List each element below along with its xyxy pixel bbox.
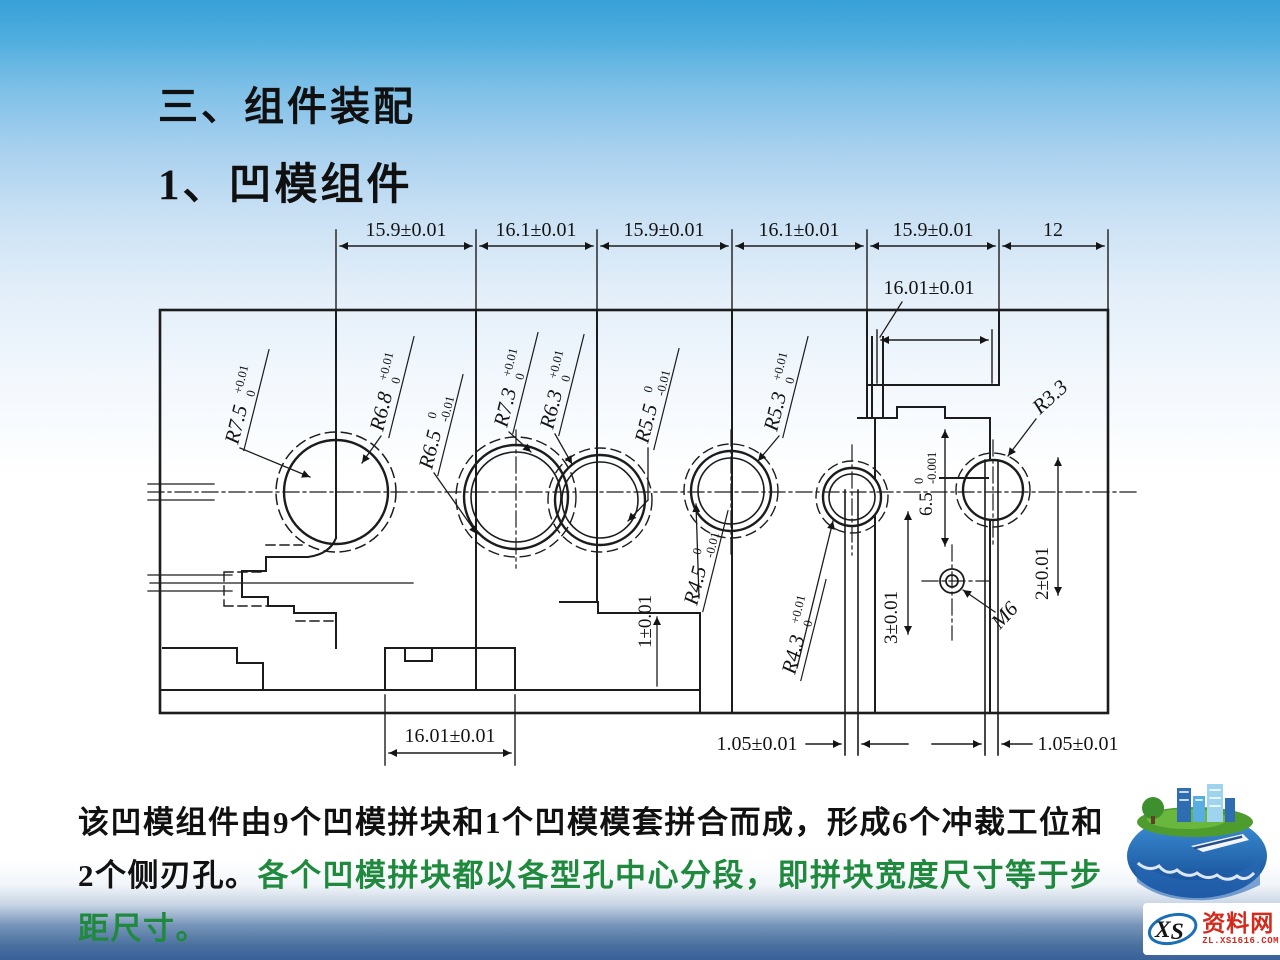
body-paragraph: 该凹模组件由9个凹模拼块和1个凹模模套拼合而成，形成6个冲裁工位和 2个侧刃孔。… [78,796,1193,955]
dim-12: 12 [1043,219,1063,241]
dim-1-05-left: 1.05±0.01 [717,733,908,755]
svg-text:16.01±0.01: 16.01±0.01 [884,277,975,299]
body-line-2: 2个侧刃孔。各个凹模拼块都以各型孔中心分段，即拼块宽度尺寸等于步 [78,849,1193,902]
svg-text:1±0.01: 1±0.01 [635,595,656,648]
svg-text:16.01±0.01: 16.01±0.01 [405,725,496,747]
svg-text:M6: M6 [985,596,1023,634]
svg-text:0: 0 [912,478,926,484]
svg-text:0: 0 [388,376,403,385]
svg-text:R4.5: R4.5 [678,563,711,608]
svg-text:X: X [1154,917,1172,943]
svg-text:2±0.01: 2±0.01 [1032,547,1053,600]
body-line-1: 该凹模组件由9个凹模拼块和1个凹模模套拼合而成，形成6个冲裁工位和 [78,796,1193,849]
svg-text:3±0.01: 3±0.01 [881,591,902,644]
svg-text:R7.3: R7.3 [488,385,521,430]
svg-text:-0.001: -0.001 [925,452,939,484]
dim-15-9-a: 15.9±0.01 [366,219,447,241]
dim-15-9-c: 15.9±0.01 [893,219,974,241]
svg-text:S: S [1171,919,1184,945]
svg-text:6.5: 6.5 [916,492,937,516]
xs-logo-icon: X S [1147,909,1198,949]
svg-text:R6.8: R6.8 [364,389,397,434]
svg-text:R7.5: R7.5 [219,402,252,447]
body-line-3: 距尺寸。 [78,902,1193,955]
svg-text:-0.01: -0.01 [437,395,457,424]
dim-16-01-bottom: 16.01±0.01 [385,695,515,765]
svg-text:0: 0 [558,374,573,383]
svg-text:R6.3: R6.3 [534,387,567,432]
svg-text:R3.3: R3.3 [1027,375,1073,420]
svg-text:R4.3: R4.3 [776,632,809,677]
watermark-card: X S 资料网 ZL.XS1616.COM [1143,903,1280,955]
svg-text:R5.5: R5.5 [629,401,662,446]
watermark-name: 资料网 [1202,912,1279,936]
watermark-text: 资料网 ZL.XS1616.COM [1202,912,1279,946]
watermark-url: ZL.XS1616.COM [1202,936,1279,946]
slide: { "slide": { "title_line1": "三、组件装配", "t… [0,0,1280,960]
dim-1-05-right: 1.05±0.01 [932,733,1118,755]
svg-text:0: 0 [782,376,797,385]
svg-text:0: 0 [243,389,258,398]
svg-text:1.05±0.01: 1.05±0.01 [1038,733,1119,755]
svg-text:0: 0 [800,619,815,628]
dim-16-1-a: 16.1±0.01 [496,219,577,241]
svg-text:R5.3: R5.3 [758,389,791,434]
svg-text:R6.5: R6.5 [413,427,446,472]
svg-text:1.05±0.01: 1.05±0.01 [717,733,798,755]
vertical-dimensions: 1±0.01 3±0.01 6.50-0.001 2±0.01 M6 [635,430,1058,648]
svg-text:0: 0 [512,372,527,381]
svg-text:-0.01: -0.01 [702,531,722,560]
svg-text:-0.01: -0.01 [653,369,673,398]
dim-15-9-b: 15.9±0.01 [624,219,705,241]
dim-16-1-b: 16.1±0.01 [759,219,840,241]
top-dimension-chain: 15.9±0.01 16.1±0.01 15.9±0.01 16.1±0.01 … [336,219,1108,309]
dim-16-01-top: 16.01±0.01 [877,277,992,383]
